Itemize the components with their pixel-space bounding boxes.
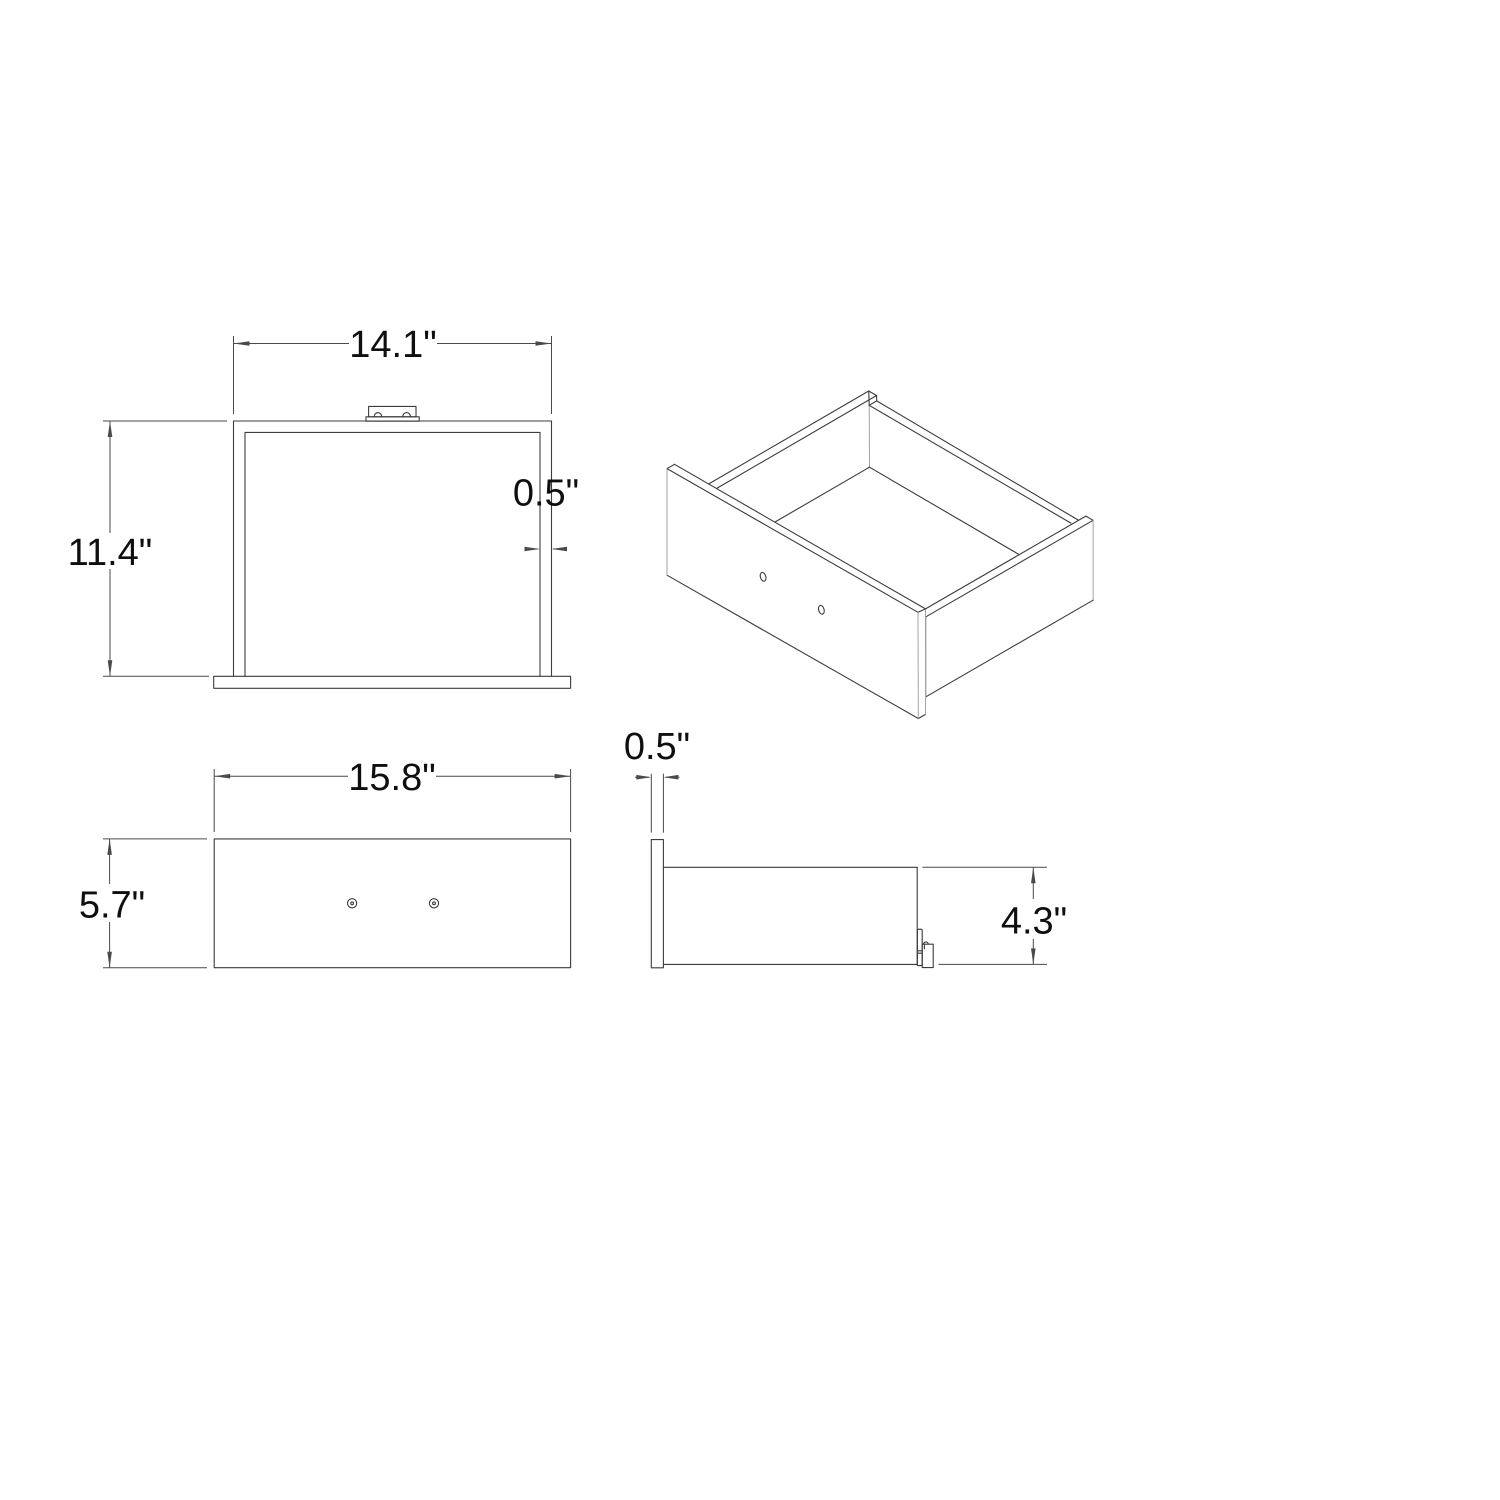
svg-text:0.5": 0.5" [624,726,690,768]
svg-text:15.8": 15.8" [348,757,435,799]
svg-text:4.3": 4.3" [1001,900,1067,942]
svg-text:11.4": 11.4" [68,532,153,574]
svg-text:14.1": 14.1" [349,324,436,366]
svg-text:0.5": 0.5" [513,473,579,515]
svg-text:5.7": 5.7" [79,884,145,926]
